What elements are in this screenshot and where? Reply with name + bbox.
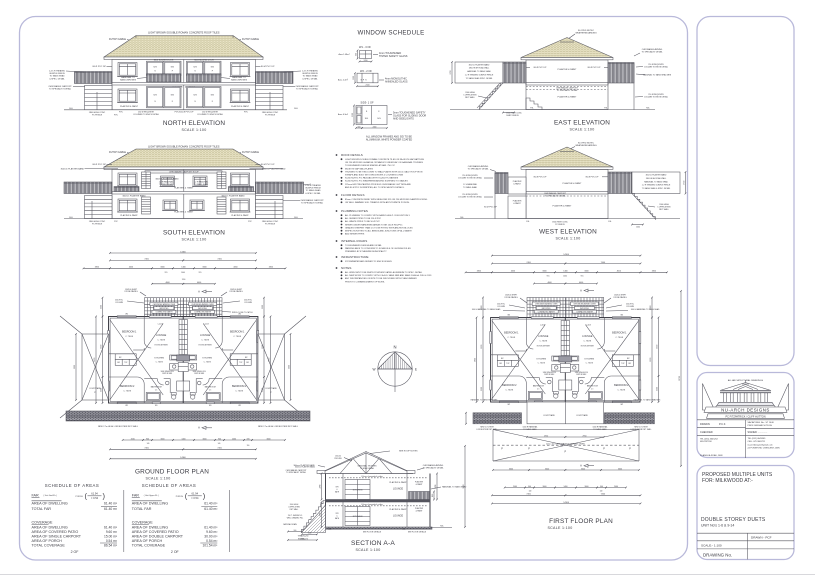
svg-text:SOUTH ELEVATION: SOUTH ELEVATION: [163, 230, 225, 237]
svg-text:INSPECTION EYES TO ALL BENDS A: INSPECTION EYES TO ALL BENDS AND JUNCTIO…: [345, 230, 412, 233]
svg-text:FGL: FGL: [526, 221, 529, 223]
svg-text:TO SANG SHAD: TO SANG SHAD: [463, 186, 478, 189]
svg-text:190: 190: [247, 445, 250, 447]
svg-text:61.40 m²: 61.40 m²: [104, 501, 118, 505]
svg-text:TOP: TOP: [124, 362, 127, 364]
svg-text:15.00 m²: 15.00 m²: [104, 534, 118, 538]
svg-text:C. TILES: C. TILES: [123, 391, 131, 393]
svg-text:KITCHEN: KITCHEN: [584, 359, 594, 361]
svg-text:BEDROOM 2: BEDROOM 2: [614, 384, 629, 387]
svg-text:140: 140: [600, 491, 603, 493]
svg-text:30.00 m²: 30.00 m²: [204, 534, 218, 538]
svg-text:2700: 2700: [450, 71, 452, 75]
svg-text:S/D3- 1 OF: S/D3- 1 OF: [360, 101, 374, 105]
svg-text:9x200 NUTEC F/C WEATHERBOARDIN: 9x200 NUTEC F/C WEATHERBOARDING SCREWED …: [345, 180, 408, 183]
svg-text:IMPORTED: IMPORTED: [542, 308, 552, 310]
svg-text:TO SPECIALIST DETAIL: TO SPECIALIST DETAIL: [544, 194, 565, 197]
svg-text:80 Ø PVC DP: 80 Ø PVC DP: [588, 67, 601, 69]
svg-text:CHROMADEK CARPORT: CHROMADEK CARPORT: [295, 85, 319, 88]
svg-text:10m x 5m CHROMADECK AWNIN: 10m x 5m CHROMADECK AWNING OVER: [546, 442, 585, 445]
svg-text:DRAWN: DRAWN: [700, 422, 710, 426]
svg-text:140: 140: [218, 443, 221, 445]
svg-text:LOUNGE: LOUNGE: [156, 334, 167, 337]
svg-text:9x200 NUTEC F/C FASCIAS WITH 7: 9x200 NUTEC F/C FASCIAS WITH 75x200 F/C …: [345, 177, 399, 180]
svg-text:IMPORTED: IMPORTED: [198, 308, 208, 310]
svg-text:LOUNGE: LOUNGE: [393, 515, 404, 518]
svg-text:LOUNGE: LOUNGE: [582, 335, 593, 338]
svg-text:PVC/100 Ø PVC DP: PVC/100 Ø PVC DP: [175, 112, 194, 114]
svg-text:BEDROOM 1: BEDROOM 1: [122, 331, 137, 334]
svg-text:TOP: TOP: [621, 363, 624, 365]
svg-text:nuarchdesigns@gmail.com: nuarchdesigns@gmail.com: [748, 443, 773, 446]
svg-text:WEST ELEVATION: WEST ELEVATION: [539, 229, 597, 236]
svg-text:RET. WALL: RET. WALL: [290, 508, 299, 511]
svg-text:CHROMDEK AWNING OVER: CHROMDEK AWNING OVER: [153, 303, 176, 306]
svg-text:900: 900: [600, 486, 603, 488]
svg-text:STONE PAVING: STONE PAVING: [613, 296, 627, 299]
svg-text:DRIP IN SINK: DRIP IN SINK: [194, 373, 205, 375]
svg-text:14300: 14300: [563, 254, 569, 256]
svg-text:WELL DRAINED FILL: WELL DRAINED FILL: [287, 517, 304, 520]
svg-text:L-1D3: L-1D3: [540, 325, 545, 327]
svg-text:3460: 3460: [652, 271, 656, 273]
svg-text:3300: 3300: [262, 345, 264, 349]
svg-text:SIGNED: ..............: SIGNED: ..............: [748, 431, 768, 434]
svg-text:TO SPECIALIST DETAIL: TO SPECIALIST DETAIL: [467, 168, 488, 171]
svg-text:W1: W1: [209, 405, 212, 407]
svg-text:DRIP IN SINK: DRIP IN SINK: [544, 374, 555, 376]
svg-text:RET. WALL: RET. WALL: [659, 208, 669, 211]
svg-text:140: 140: [529, 491, 532, 493]
svg-text:TO SANG SHAD & SPEC. DETAIL: TO SANG SHAD & SPEC. DETAIL: [642, 187, 671, 190]
svg-text:SACAP REG No.: ST 1446: SACAP REG No.: ST 1446: [748, 421, 775, 424]
svg-text:300mm PLASTER BAND: 300mm PLASTER BAND: [122, 195, 146, 198]
svg-text:PLASTER & PAINT: PLASTER & PAINT: [563, 182, 583, 185]
svg-text:915: 915: [165, 272, 168, 274]
svg-text:SCALE 1:100: SCALE 1:100: [569, 128, 594, 132]
svg-text:61.40 m²: 61.40 m²: [204, 507, 218, 511]
svg-text:DUTCH GABLE: DUTCH GABLE: [242, 38, 259, 41]
svg-text:WEATHERBOARDING: WEATHERBOARDING: [575, 144, 597, 147]
svg-text:TO SPECIALIST DETAIL: TO SPECIALIST DETAIL: [301, 202, 324, 205]
svg-text:ALL WASTE PIPES TO BE 50 Ø PVC: ALL WASTE PIPES TO BE 50 Ø PVC: [345, 220, 380, 223]
svg-text:TOP: TOP: [239, 362, 242, 364]
svg-text:3000: 3000: [267, 438, 271, 440]
svg-text:N: N: [393, 345, 396, 350]
svg-text:L-1D3: L-1D3: [204, 324, 209, 326]
svg-text:10700: 10700: [679, 376, 681, 381]
svg-text:LOUNGE: LOUNGE: [393, 488, 404, 491]
svg-text:SEE FLOOR DETAILS: SEE FLOOR DETAILS: [408, 531, 427, 534]
svg-text:SCHEDULE OF AREAS: SCHEDULE OF AREAS: [45, 483, 100, 488]
svg-text:AREA OF COVERED PATIO: AREA OF COVERED PATIO: [132, 530, 179, 534]
svg-text:3000: 3000: [203, 438, 207, 440]
svg-text:PC FENCE: PC FENCE: [509, 115, 519, 117]
svg-text:COLUMN TO ENG’S DETAIL: COLUMN TO ENG’S DETAIL: [458, 195, 482, 198]
svg-text:COURTYARD: COURTYARD: [576, 414, 588, 417]
svg-text:C. TILES: C. TILES: [617, 390, 625, 392]
svg-text:ON 250 MICRONS LA FARGE OR MAR: ON 250 MICRONS LA FARGE OR MARLEY UNDERL…: [345, 161, 424, 164]
svg-text:900: 900: [528, 486, 531, 488]
svg-text:C. TILES: C. TILES: [125, 336, 133, 338]
svg-text:& SPEC. DETAIL: & SPEC. DETAIL: [49, 77, 65, 80]
svg-text:SCALE 1:100: SCALE 1:100: [145, 477, 170, 481]
svg-text:P.C.F.: P.C.F.: [719, 422, 726, 426]
svg-text:0.54 m²: 0.54 m²: [206, 539, 218, 543]
svg-text:5800: 5800: [475, 358, 477, 362]
svg-text:DRAWN - PCF: DRAWN - PCF: [751, 536, 772, 540]
svg-text:80 Ø PVC DP: 80 Ø PVC DP: [93, 164, 107, 166]
svg-text:1.2m H TREATED: 1.2m H TREATED: [302, 70, 319, 73]
svg-text:5800: 5800: [269, 358, 271, 362]
svg-text:TO SANG SHAD: TO SANG SHAD: [194, 183, 209, 186]
svg-text:COLUMNS TO ENG’S DETAIL: COLUMNS TO ENG’S DETAIL: [133, 113, 159, 116]
svg-text:24 PONSFORD CRESCENT, DBN: 24 PONSFORD CRESCENT, DBN: [748, 448, 780, 450]
svg-text:COLUMN: COLUMN: [497, 306, 505, 308]
svg-text:C. TILES: C. TILES: [157, 340, 165, 342]
svg-text:& PAINT: & PAINT: [416, 509, 424, 512]
svg-text:6.5mm chromadeck ceiling: 6.5mm chromadeck ceiling: [361, 476, 382, 478]
svg-text:SCALE 1:100: SCALE 1:100: [181, 128, 206, 132]
svg-text:TO ENGINEERS DESIGN AND DETAIL: TO ENGINEERS DESIGN AND DETAIL: [345, 244, 383, 247]
svg-text:4000: 4000: [165, 282, 169, 284]
svg-text:300mm PLASTER BAND: 300mm PLASTER BAND: [61, 167, 85, 170]
svg-text:C. TILES: C. TILES: [538, 363, 546, 365]
svg-text:2100: 2100: [366, 85, 370, 87]
svg-text:PVC: PVC: [244, 112, 249, 114]
svg-text:4000: 4000: [547, 282, 551, 284]
svg-text:NEW 2.7m HIGH LOFFELSTEIN RET.: NEW 2.7m HIGH LOFFELSTEIN RET. WALL: [98, 425, 139, 428]
svg-text:50 ANGLIA ROAD, DBN: 50 ANGLIA ROAD, DBN: [700, 454, 723, 457]
svg-text:PLASTER & PAINT: PLASTER & PAINT: [558, 96, 578, 99]
svg-text:4000: 4000: [197, 282, 201, 284]
svg-text:2500: 2500: [320, 513, 322, 517]
svg-text:2 OF: 2 OF: [171, 550, 179, 554]
svg-text:UNIT No’s 1-6 & 9-14: UNIT No’s 1-6 & 9-14: [701, 524, 734, 528]
svg-text:SANDOWN MES: SANDOWN MES: [120, 79, 137, 82]
svg-text:2700: 2700: [435, 485, 437, 489]
svg-text:AREA OF COVERED PATIO: AREA OF COVERED PATIO: [32, 530, 79, 534]
svg-text:TOP: TOP: [506, 363, 509, 365]
svg-text:600: 600: [358, 127, 361, 129]
svg-text:COMPACTED EARTH: COMPACTED EARTH: [155, 311, 173, 314]
svg-text:TOTAL COVERAGE: TOTAL COVERAGE: [132, 544, 166, 548]
svg-text:SLOPED NUTEC: SLOPED NUTEC: [578, 143, 595, 145]
svg-text:C. TILES: C. TILES: [615, 337, 623, 339]
svg-text:1.2 H TREATED GUMPLE FENCE: 1.2 H TREATED GUMPLE FENCE: [465, 74, 494, 77]
svg-text:TO SANG SHAD: TO SANG SHAD: [305, 189, 321, 192]
svg-text:SCALE 1:100: SCALE 1:100: [181, 238, 206, 242]
svg-text:TRUSSES TO BE TIED DOWN TO WAL: TRUSSES TO BE TIED DOWN TO WALLPLATES WI…: [345, 170, 423, 173]
svg-text:COLUMN: COLUMN: [115, 302, 123, 304]
svg-text:5000: 5000: [463, 485, 465, 489]
svg-text:2100: 2100: [352, 113, 354, 117]
svg-text:FGL: FGL: [604, 108, 607, 110]
svg-text:WEATHERBOARDING: WEATHERBOARDING: [575, 32, 597, 35]
svg-text:CHROMADEK CARPORT: CHROMADEK CARPORT: [48, 85, 72, 88]
svg-text:COLUMN TO ENG’S DETAIL: COLUMN TO ENG’S DETAIL: [644, 66, 668, 69]
svg-text:IMPORTED: IMPORTED: [580, 308, 590, 310]
svg-text:W1: W1: [125, 405, 128, 407]
svg-text:SCALE:- 1:100: SCALE:- 1:100: [701, 543, 722, 547]
svg-text:E.H.W.GEYSER: E.H.W.GEYSER: [537, 346, 551, 348]
svg-text:Area 6.3m²: Area 6.3m²: [338, 113, 348, 116]
svg-text:2700: 2700: [320, 485, 322, 489]
svg-text:2130: 2130: [301, 538, 305, 540]
svg-text:BEDROOM 1: BEDROOM 1: [504, 332, 519, 335]
svg-text:PLASTER & PAINT: PLASTER & PAINT: [389, 481, 407, 484]
svg-text:COVERAGE: COVERAGE: [32, 520, 53, 524]
svg-text:900: 900: [294, 530, 297, 532]
svg-text:W2 - 2 OF: W2 - 2 OF: [360, 69, 372, 73]
svg-text:2500: 2500: [101, 388, 103, 392]
svg-text:5000: 5000: [289, 365, 291, 369]
svg-text:NGL: NGL: [460, 217, 464, 219]
svg-text:HANDRAIL TO SANG SHAD: HANDRAIL TO SANG SHAD: [467, 70, 491, 73]
svg-text:FLOOR DETAILS: FLOOR DETAILS: [341, 193, 364, 197]
svg-text:3000: 3000: [585, 486, 589, 488]
svg-text:LOUNGE: LOUNGE: [200, 334, 211, 337]
svg-text:3000: 3000: [542, 271, 546, 273]
svg-text:14300: 14300: [563, 502, 569, 504]
svg-text:125mm H/R PRE-PAINTED PROFILED: 125mm H/R PRE-PAINTED PROFILED CHROMADEK…: [345, 183, 411, 186]
svg-text:5800: 5800: [94, 358, 96, 362]
svg-text:3460: 3460: [477, 271, 481, 273]
svg-text:COLUMN TO ENG’S DETAIL: COLUMN TO ENG’S DETAIL: [458, 176, 482, 179]
svg-text:S/G: S/G: [193, 66, 197, 68]
svg-text:1800 HIGH ROAD WALL: 1800 HIGH ROAD WALL: [646, 177, 667, 180]
svg-text:NATURAL DRAIN: NATURAL DRAIN: [283, 523, 297, 526]
svg-text:1400: 1400: [563, 276, 567, 278]
svg-text:AND SIDELIGHTS: AND SIDELIGHTS: [393, 118, 414, 121]
svg-text:2060: 2060: [232, 438, 236, 440]
svg-text:PC FENCE: PC FENCE: [265, 114, 276, 116]
svg-text:PLASTER & PAINT: PLASTER & PAINT: [553, 205, 573, 208]
svg-text:C. TILES: C. TILES: [539, 341, 547, 343]
svg-text:1.2 H HANDRAIL: 1.2 H HANDRAIL: [463, 183, 477, 186]
svg-text:INTERNAL ROADS: INTERNAL ROADS: [341, 239, 367, 243]
svg-text:= 0.54: = 0.54: [191, 496, 199, 500]
svg-text:C. TILES: C. TILES: [204, 362, 212, 364]
svg-text:TO SPECIALIST DETAIL: TO SPECIALIST DETAIL: [641, 51, 662, 54]
svg-text:S F S: S F S: [360, 80, 367, 82]
svg-text:TO SPECIALIST DETAIL: TO SPECIALIST DETAIL: [296, 88, 319, 91]
svg-text:61.40 m²: 61.40 m²: [204, 501, 218, 505]
svg-text:S/G: S/G: [211, 66, 215, 68]
svg-text:STONE PAVING: STONE PAVING: [229, 290, 243, 293]
svg-text:3000: 3000: [161, 438, 165, 440]
svg-text:900: 900: [356, 53, 358, 56]
svg-text:ROOF DETAILS: ROOF DETAILS: [341, 153, 363, 157]
svg-text:FOR: MILKWOOD AT:-: FOR: MILKWOOD AT:-: [702, 478, 753, 484]
svg-text:RWDG CLOSE TO CATCH: RWDG CLOSE TO CATCH: [232, 311, 253, 314]
svg-text:SINK SINGLE S/S: SINK SINGLE S/S: [543, 372, 556, 374]
svg-text:TREADS=250: TREADS=250: [298, 535, 309, 538]
svg-text:S/G: S/G: [365, 118, 369, 120]
svg-text:2500: 2500: [657, 387, 659, 391]
svg-text:915: 915: [581, 276, 584, 278]
svg-text:CHROMDEK AWNING OVER: CHROMDEK AWNING OVER: [573, 303, 596, 306]
svg-text:C. TILES: C. TILES: [507, 337, 515, 339]
svg-text:SEE ROOF NOTES: SEE ROOF NOTES: [399, 451, 418, 453]
svg-text:S/G: S/G: [377, 118, 381, 120]
svg-text:AREA OF PORCH: AREA OF PORCH: [132, 539, 163, 543]
svg-text:14300: 14300: [180, 457, 186, 459]
svg-text:2300: 2300: [101, 305, 103, 309]
svg-text:AREA OF SINGLE CARPORT: AREA OF SINGLE CARPORT: [32, 534, 82, 538]
svg-text:1000: 1000: [432, 494, 434, 498]
svg-text:EAST ELEVATION: EAST ELEVATION: [554, 120, 610, 127]
svg-text:Area 2.4m²: Area 2.4m²: [338, 79, 348, 82]
svg-text:101.54 m²: 101.54 m²: [202, 544, 218, 548]
svg-text:A: A: [198, 289, 200, 293]
svg-text:KITCHEN: KITCHEN: [353, 490, 363, 492]
svg-text:1.2 H TREATED GUMPLE FENCE: 1.2 H TREATED GUMPLE FENCE: [642, 184, 671, 187]
svg-text:C. TILES: C. TILES: [235, 391, 243, 393]
svg-text:2950: 2950: [583, 435, 587, 437]
svg-text:3300: 3300: [657, 345, 659, 349]
svg-text:COVERAGE: COVERAGE: [132, 520, 153, 524]
svg-text:300mm PLASTER BAND: 300mm PLASTER BAND: [155, 177, 179, 180]
svg-text:TO SPECIALIST DETAIL: TO SPECIALIST DETAIL: [422, 467, 443, 470]
svg-text:HANDRAIL TO: HANDRAIL TO: [121, 76, 135, 79]
svg-text:4050: 4050: [617, 271, 621, 273]
svg-text:3000: 3000: [543, 486, 547, 488]
svg-text:FGL: FGL: [608, 221, 611, 223]
svg-text:300mm PLASTER BAND: 300mm PLASTER BAND: [295, 465, 316, 468]
svg-text:4050: 4050: [129, 267, 133, 269]
svg-text:80 Ø PVC DP: 80 Ø PVC DP: [534, 177, 547, 179]
svg-text:SCALE 1:100: SCALE 1:100: [555, 237, 580, 241]
svg-text:PVC: PVC: [114, 115, 119, 117]
svg-text:61.94: 61.94: [192, 492, 199, 496]
svg-text:( Unit Gnd Flr ): ( Unit Gnd Flr ): [44, 494, 58, 497]
svg-text:GROUND FLOOR PLAN: GROUND FLOOR PLAN: [135, 469, 209, 476]
svg-text:190: 190: [247, 438, 250, 440]
svg-text:900: 900: [218, 438, 221, 440]
svg-text:W1: W1: [507, 404, 510, 406]
svg-text:ALL WINDOWS TO BE WHITE POWDER: ALL WINDOWS TO BE WHITE POWDERCOATED ALU…: [345, 271, 423, 274]
svg-text:1200: 1200: [353, 76, 355, 80]
svg-text:61.40 m²: 61.40 m²: [204, 526, 218, 530]
svg-text:AND SEWER PIPES: AND SEWER PIPES: [345, 233, 365, 236]
svg-text:BEDROOM 1: BEDROOM 1: [612, 332, 627, 335]
svg-text:& SPEC. DETAIL: & SPEC. DETAIL: [302, 77, 318, 80]
svg-text:80 Ø PVC DP: 80 Ø PVC DP: [586, 177, 599, 179]
svg-text:3600: 3600: [509, 468, 513, 470]
svg-text:2500: 2500: [481, 387, 483, 391]
svg-text:S/G: S/G: [193, 94, 197, 96]
svg-text:2300: 2300: [481, 306, 483, 310]
svg-text:HANDRAIL TO SANG SHAD MES: HANDRAIL TO SANG SHAD MES: [471, 398, 499, 401]
svg-text:E.H.W.GEYSER: E.H.W.GEYSER: [199, 345, 213, 347]
svg-text:E: E: [415, 368, 417, 372]
svg-text:PRIOR TO COMMENCEMENT OF WORK.: PRIOR TO COMMENCEMENT OF WORK.: [345, 281, 385, 283]
svg-text:COLUMN: COLUMN: [626, 306, 634, 308]
svg-text:C. TILES: C. TILES: [505, 390, 513, 392]
svg-text:BATHROOM: BATHROOM: [587, 385, 598, 388]
svg-text:3300: 3300: [101, 345, 103, 349]
svg-text:S/G: S/G: [153, 66, 157, 68]
svg-text:DUTCH GABLE: DUTCH GABLE: [242, 151, 259, 154]
svg-text:85mm CONCRETE REINF. WITH MESH: 85mm CONCRETE REINF. WITH MESH REF 395 O…: [345, 198, 428, 201]
svg-text:LOUNGE: LOUNGE: [538, 335, 549, 338]
svg-text:TEL (031) 4649569: TEL (031) 4649569: [748, 438, 767, 440]
svg-text:A: A: [580, 464, 582, 468]
svg-text:14300: 14300: [180, 251, 186, 253]
svg-text:PLASTER & PAINT: PLASTER & PAINT: [231, 105, 250, 108]
svg-text:9.60 m²: 9.60 m²: [206, 530, 218, 534]
svg-text:BATHROOM: BATHROOM: [205, 386, 216, 389]
svg-text:STONE PAVING: STONE PAVING: [504, 296, 518, 299]
svg-text:PLASTER & PAINT: PLASTER & PAINT: [558, 68, 578, 71]
svg-text:1400: 1400: [564, 486, 568, 488]
svg-text:PORCH: PORCH: [76, 496, 84, 498]
svg-text:C. TILES: C. TILES: [583, 341, 591, 343]
svg-text:TINTED SAFETY GLASS: TINTED SAFETY GLASS: [379, 55, 408, 58]
svg-text:BEDROOM 2: BEDROOM 2: [120, 385, 135, 388]
svg-text:38x38 VS GAP WALLPLATES: 38x38 VS GAP WALLPLATES: [345, 167, 374, 170]
svg-text:NEW 2.7m HIGH LOFFELSTEIN RET.: NEW 2.7m HIGH LOFFELSTEIN RET. WALL: [258, 425, 299, 428]
svg-text:Area 1.08m²: Area 1.08m²: [338, 53, 349, 56]
svg-text:PVC: PVC: [119, 112, 124, 114]
svg-text:W2: W2: [238, 314, 241, 316]
svg-text:NGL: NGL: [69, 217, 73, 219]
svg-text:TO SPECIALIST DETAIL: TO SPECIALIST DETAIL: [286, 471, 306, 474]
svg-text:3300: 3300: [650, 358, 652, 362]
svg-text:WINDOW SCHEDULE: WINDOW SCHEDULE: [357, 30, 424, 37]
svg-text:4050: 4050: [511, 271, 515, 273]
svg-text:1400: 1400: [181, 272, 185, 274]
svg-text:& PAINT: & PAINT: [513, 202, 521, 205]
svg-text:S/G: S/G: [153, 94, 157, 96]
svg-text:1540: 1540: [308, 533, 312, 535]
svg-text:PLASTER & PAINT: PLASTER & PAINT: [120, 105, 139, 108]
svg-text:3600: 3600: [618, 468, 622, 470]
svg-text:NGL: NGL: [440, 525, 444, 527]
svg-text:IMPORTED: IMPORTED: [159, 308, 169, 310]
svg-text:140: 140: [147, 443, 150, 445]
svg-text:NU-ARCH DESIGNS: NU-ARCH DESIGNS: [721, 408, 770, 413]
svg-text:&: &: [336, 516, 337, 518]
svg-text:3300: 3300: [481, 345, 483, 349]
svg-text:PARKING BAYS TO CONFORM TO SCH: PARKING BAYS TO CONFORM TO SCHEDULE OF G…: [345, 247, 411, 250]
svg-text:ANY DISCREPANCIES ON SITE TO B: ANY DISCREPANCIES ON SITE TO BE DISCUSSE…: [345, 277, 417, 280]
svg-text:NGL: NGL: [294, 217, 298, 219]
svg-text:INFRASTRUCTURE: INFRASTRUCTURE: [341, 255, 369, 259]
svg-text:CELL 079 3665711: CELL 079 3665711: [748, 441, 767, 443]
svg-text:A: A: [580, 288, 582, 292]
svg-text:AND 80 Ø PVC DOWNPIPES, ALL TO: AND 80 Ø PVC DOWNPIPES, ALL TO SPECIALIS…: [345, 186, 405, 189]
svg-text:C. TILES: C. TILES: [233, 336, 241, 338]
svg-text:DOUBLE STOREY DUETS: DOUBLE STOREY DUETS: [701, 517, 766, 523]
svg-text:PC FENCE: PC FENCE: [265, 224, 276, 226]
svg-text:W2: W2: [507, 315, 510, 317]
svg-text:300mm PLASTER BAND: 300mm PLASTER BAND: [469, 63, 490, 66]
svg-text:PURLINS: PURLINS: [334, 458, 342, 460]
svg-text:GRADES STEEPER THAN 1:5 TO BE: GRADES STEEPER THAN 1:5 TO BE FITTED WIT…: [345, 226, 413, 229]
svg-text:FFL: FFL: [329, 529, 332, 531]
svg-text:SINK SINGLE S/S: SINK SINGLE S/S: [575, 372, 588, 374]
svg-text:L-1D3: L-1D3: [586, 325, 591, 327]
svg-text:& PAINT: & PAINT: [513, 183, 521, 186]
svg-text:80 Ø PVC DP: 80 Ø PVC DP: [261, 164, 275, 166]
svg-text:RET. WALL: RET. WALL: [465, 96, 475, 99]
svg-text:ALL PLUMBING TO COMPLY WITH SA: ALL PLUMBING TO COMPLY WITH SANS 10400-P…: [345, 214, 411, 217]
svg-text:C. TILES: C. TILES: [201, 340, 209, 342]
svg-text:2950: 2950: [544, 435, 548, 437]
svg-text:1800 HIGH ROAD WALL: 1800 HIGH ROAD WALL: [469, 67, 490, 70]
